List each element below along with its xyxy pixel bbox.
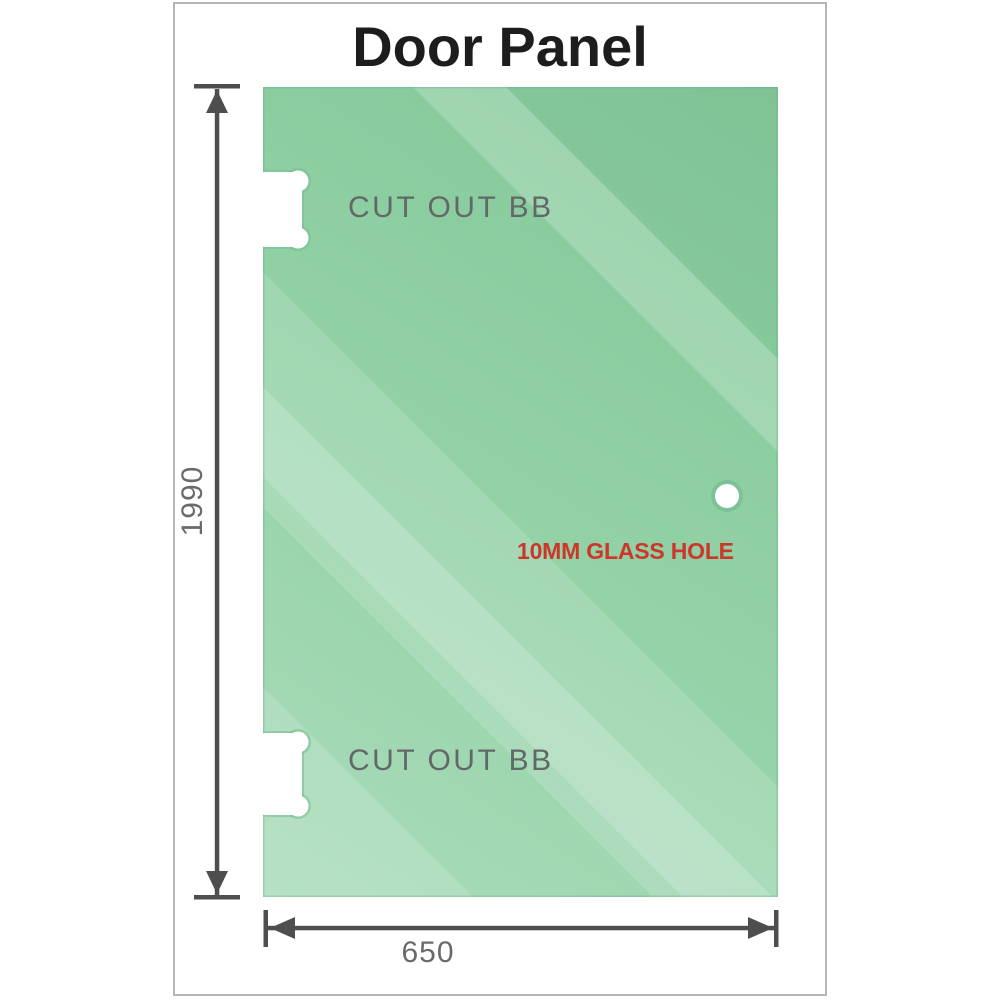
cutout-bottom-shape: [263, 729, 311, 819]
height-dimension-value: 1990: [176, 456, 210, 546]
glass-hole-circle: [711, 480, 743, 512]
cutout-top-shape: [263, 168, 311, 251]
page-title: Door Panel: [173, 14, 827, 79]
cutout-top-label: CUT OUT BB: [348, 191, 554, 225]
width-dimension-value: 650: [383, 936, 473, 970]
cutout-bottom-label: CUT OUT BB: [348, 744, 554, 778]
door-panel-diagram: Door Panel: [0, 0, 1000, 1000]
glass-hole-label: 10MM GLASS HOLE: [517, 538, 734, 565]
